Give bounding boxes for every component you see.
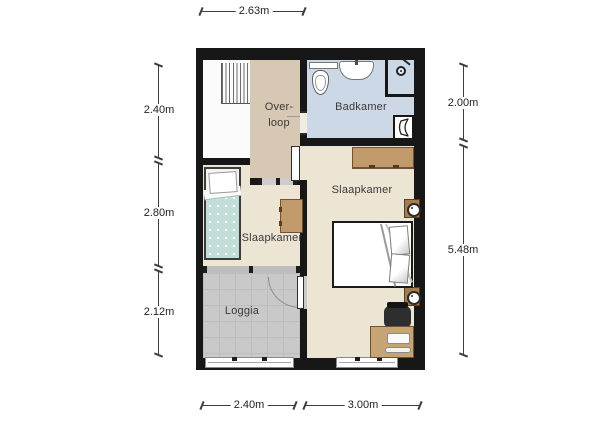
wardrobe	[352, 147, 414, 169]
window-tick	[355, 357, 360, 361]
laptop-icon	[385, 347, 411, 353]
dresser-knob	[279, 207, 282, 212]
window-tick	[232, 357, 237, 361]
shower-enclosure-wall	[385, 94, 414, 97]
loggia-door-leaf	[297, 276, 304, 309]
loggia-sliding-window	[203, 266, 300, 273]
wardrobe-handle	[369, 165, 375, 168]
lamp-circle	[407, 203, 421, 217]
bed-blanket	[206, 194, 239, 258]
pillow	[208, 171, 237, 194]
window-tick	[262, 357, 267, 361]
doorway-tick	[203, 266, 207, 273]
room-label-line: loop	[265, 115, 294, 131]
dimension-label: 5.48m	[445, 244, 482, 256]
doorway-tick	[249, 266, 253, 273]
pillow	[389, 253, 410, 284]
slaapkamer-right-door-opening	[300, 146, 307, 180]
loggia-window	[205, 357, 294, 368]
dimension-label: 2.40m	[141, 104, 178, 116]
room-label-slaapkamer-left: Slaapkamer	[242, 232, 303, 244]
shower-enclosure-wall	[385, 60, 388, 97]
faucet-icon	[355, 60, 358, 65]
doorway-tick	[258, 178, 262, 185]
radiator-glyph	[395, 117, 412, 138]
dimension-label: 2.40m	[231, 399, 268, 411]
doorway-tick	[276, 178, 280, 185]
lamp-circle	[407, 291, 421, 305]
room-label-overloop: Over- loop	[265, 99, 294, 131]
slaapkamer-right-door-leaf	[291, 146, 300, 181]
badkamer-door-opening	[300, 112, 307, 134]
dresser-knob	[279, 221, 282, 226]
dresser	[280, 199, 303, 233]
dimension-label: 2.00m	[445, 97, 482, 109]
dimension-label: 3.00m	[345, 399, 382, 411]
radiator-icon	[393, 115, 414, 140]
pillow	[389, 225, 410, 256]
stairs-icon	[221, 63, 250, 104]
single-bed	[204, 167, 241, 260]
dimension-label: 2.63m	[236, 5, 273, 17]
room-label-slaapkamer-right: Slaapkamer	[332, 184, 393, 196]
doorway-tick	[296, 266, 300, 273]
desk-chair	[384, 306, 411, 328]
dimension-label: 2.80m	[141, 207, 178, 219]
toilet-cistern-icon	[309, 62, 338, 69]
room-label-badkamer: Badkamer	[335, 101, 387, 113]
double-bed	[332, 221, 413, 288]
wardrobe-handle	[393, 165, 399, 168]
room-label-loggia: Loggia	[225, 305, 259, 317]
slaapkamer-right-window	[336, 357, 398, 368]
dimension-label: 2.12m	[141, 306, 178, 318]
floor-plan-canvas: Over- loop Badkamer Slaapkamer Slaapkame…	[0, 0, 600, 441]
laptop-icon	[387, 333, 410, 344]
shower-head-icon	[396, 66, 406, 76]
room-label-line: Over-	[265, 99, 294, 115]
wall-lamp-icon	[404, 199, 420, 218]
